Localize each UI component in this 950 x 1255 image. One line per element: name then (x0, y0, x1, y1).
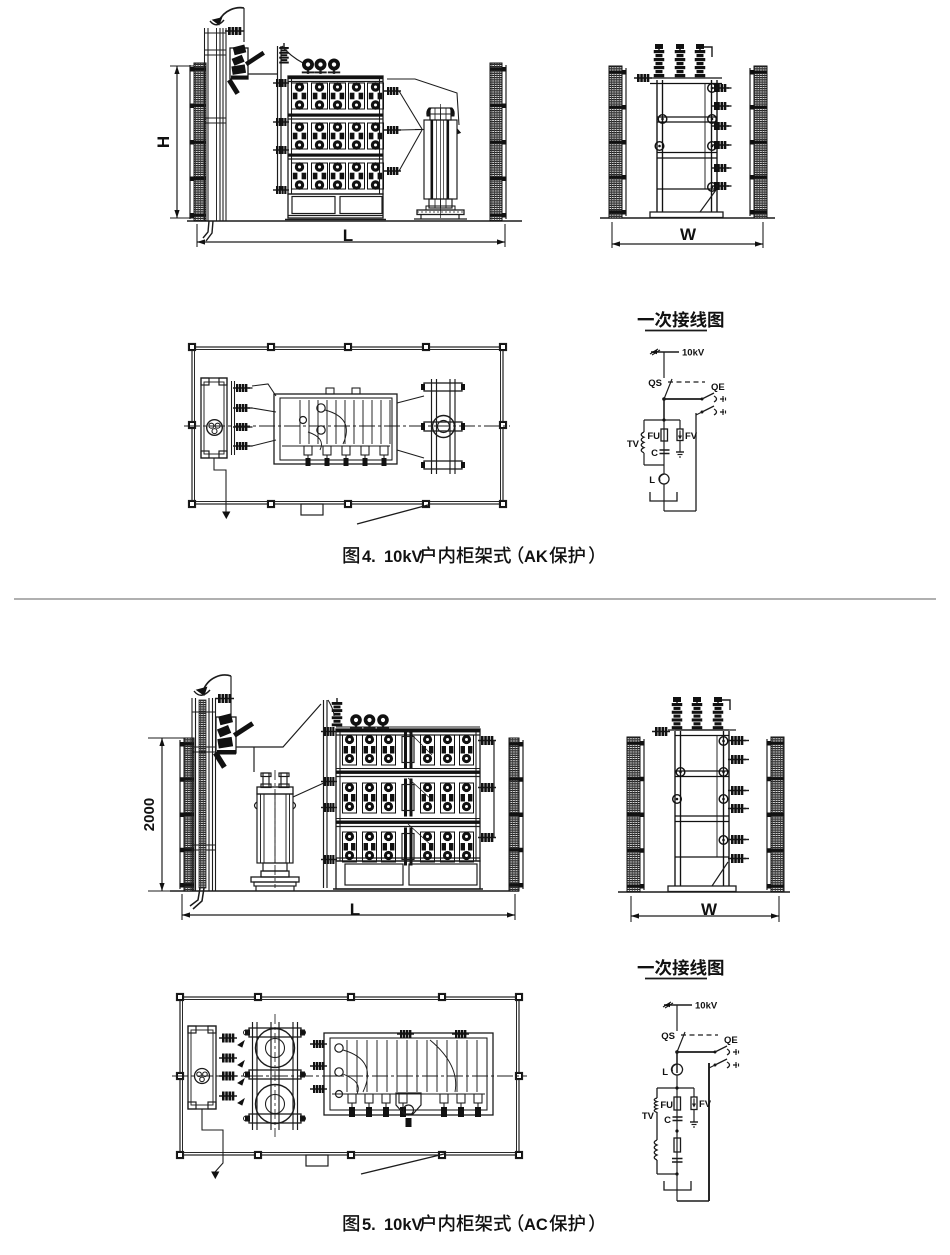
svg-text:5.: 5. (362, 1216, 376, 1234)
svg-text:4.: 4. (362, 548, 376, 566)
svg-text:QE: QE (724, 1035, 738, 1046)
svg-text:10kV: 10kV (384, 1216, 423, 1234)
svg-text:FU: FU (660, 1100, 673, 1111)
svg-text:10kV: 10kV (682, 348, 705, 359)
svg-text:W: W (701, 900, 718, 919)
svg-text:2000: 2000 (141, 798, 158, 831)
svg-text:FV: FV (699, 1099, 712, 1110)
svg-text:QE: QE (711, 382, 725, 393)
svg-text:C: C (664, 1115, 671, 1126)
svg-text:QS: QS (648, 378, 662, 389)
svg-text:L: L (350, 900, 360, 919)
svg-text:10kV: 10kV (695, 1001, 718, 1012)
svg-text:10kV: 10kV (384, 548, 423, 566)
svg-text:L: L (649, 475, 655, 486)
svg-text:L: L (343, 226, 353, 245)
svg-text:L: L (662, 1067, 668, 1078)
svg-text:QS: QS (661, 1031, 675, 1042)
svg-text:AC: AC (524, 1216, 548, 1234)
svg-text:AK: AK (524, 548, 548, 566)
svg-text:TV: TV (642, 1111, 655, 1122)
svg-text:TV: TV (627, 439, 640, 450)
svg-text:FV: FV (685, 431, 698, 442)
svg-text:FU: FU (647, 431, 660, 442)
svg-text:C: C (651, 448, 658, 459)
svg-text:H: H (154, 136, 173, 148)
svg-text:W: W (680, 225, 697, 244)
